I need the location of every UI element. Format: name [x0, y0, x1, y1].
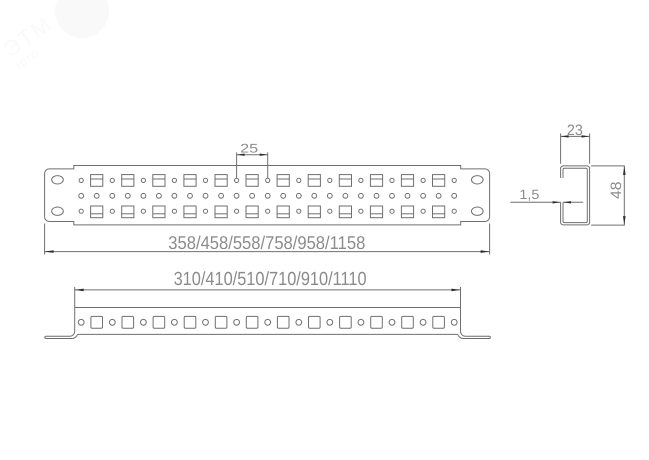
svg-text:1,5: 1,5: [519, 187, 539, 202]
svg-text:25: 25: [240, 141, 258, 155]
svg-text:310/410/510/710/910/1110: 310/410/510/710/910/1110: [174, 269, 367, 290]
svg-text:23: 23: [567, 122, 583, 139]
svg-text:358/458/558/758/958/1158: 358/458/558/758/958/1158: [168, 232, 365, 253]
svg-text:48: 48: [608, 182, 625, 200]
